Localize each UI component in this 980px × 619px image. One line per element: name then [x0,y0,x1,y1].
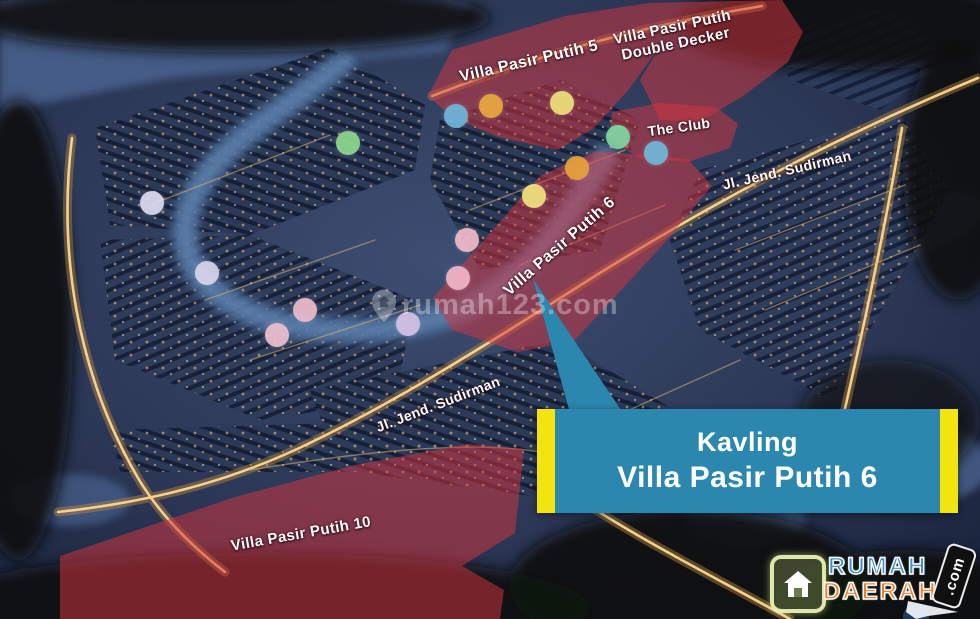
masterplan-aerial-map: Villa Pasir Putih 5 Villa Pasir Putih Do… [0,0,980,619]
map-marker-dot [195,261,219,285]
map-marker-dot [565,156,589,180]
map-marker-dot [479,94,503,118]
callout-accent-bar-left [537,409,555,513]
map-marker-dot [444,104,468,128]
watermark-text: rumah123.com [402,289,619,322]
map-marker-dot [644,141,668,165]
logo-word-daerah: DAERAH [823,578,938,606]
map-marker-dot [336,131,360,155]
map-marker-dot [550,91,574,115]
callout-accent-bar-right [940,409,958,513]
rumah-daerah-logo[interactable]: RUMAH DAERAH .com [768,545,980,619]
logo-word-rumah: RUMAH [828,553,927,581]
map-marker-dot [455,228,479,252]
map-marker-dot [606,125,630,149]
map-marker-dot [265,323,289,347]
house-glyph-icon [781,567,815,601]
logo-com-badge: .com [930,542,978,610]
map-marker-dot [140,191,164,215]
callout-title: Kavling [697,427,798,458]
kavling-callout[interactable]: Kavling Villa Pasir Putih 6 [537,409,958,513]
map-pin-icon [372,290,396,322]
house-icon [770,555,826,613]
map-marker-dot [522,184,546,208]
watermark: rumah123.com [372,289,619,322]
map-marker-dot [293,298,317,322]
callout-subtitle: Villa Pasir Putih 6 [617,461,878,495]
map-marker-dot [446,266,470,290]
callout-box: Kavling Villa Pasir Putih 6 [555,409,940,513]
